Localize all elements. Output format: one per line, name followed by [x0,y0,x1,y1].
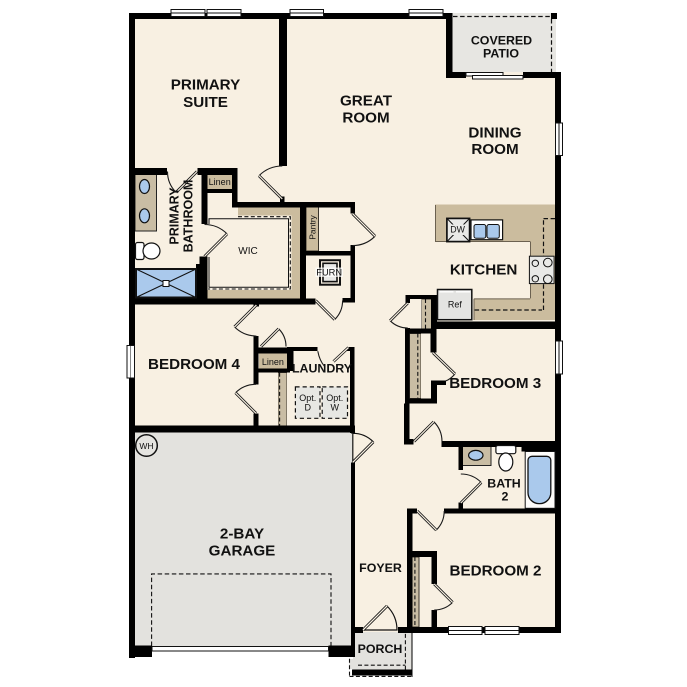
svg-text:LAUNDRY: LAUNDRY [292,362,353,376]
svg-text:GARAGE: GARAGE [209,543,276,560]
svg-text:BATH: BATH [487,477,521,491]
svg-text:GREAT: GREAT [340,93,393,110]
svg-text:2: 2 [502,490,509,504]
svg-text:BEDROOM 4: BEDROOM 4 [148,356,241,373]
svg-text:BATHROOM: BATHROOM [182,180,196,253]
svg-text:SUITE: SUITE [183,94,228,111]
svg-text:D: D [304,403,311,413]
svg-text:FURN: FURN [316,268,342,278]
svg-text:PORCH: PORCH [358,642,403,656]
svg-text:Linen: Linen [262,357,284,367]
svg-text:PRIMARY: PRIMARY [168,187,182,245]
svg-text:Opt.: Opt. [299,393,316,403]
svg-text:WIC: WIC [238,246,257,257]
svg-text:WH: WH [139,441,153,451]
svg-text:2-BAY: 2-BAY [220,526,264,543]
svg-text:KITCHEN: KITCHEN [450,261,518,278]
svg-text:BEDROOM 3: BEDROOM 3 [449,375,541,392]
svg-text:Ref: Ref [448,300,463,310]
svg-text:DINING: DINING [468,125,521,142]
svg-text:ROOM: ROOM [342,110,389,127]
svg-text:PRIMARY: PRIMARY [171,77,240,94]
svg-text:COVERED: COVERED [471,34,532,48]
svg-text:PATIO: PATIO [483,47,519,61]
svg-text:BEDROOM 2: BEDROOM 2 [450,563,542,580]
svg-text:DW: DW [450,225,465,235]
svg-text:Opt.: Opt. [326,393,343,403]
svg-text:Linen: Linen [209,177,231,187]
svg-text:Pantry: Pantry [308,214,318,239]
svg-text:FOYER: FOYER [359,561,402,575]
svg-text:ROOM: ROOM [471,141,518,158]
svg-text:W: W [331,403,340,413]
